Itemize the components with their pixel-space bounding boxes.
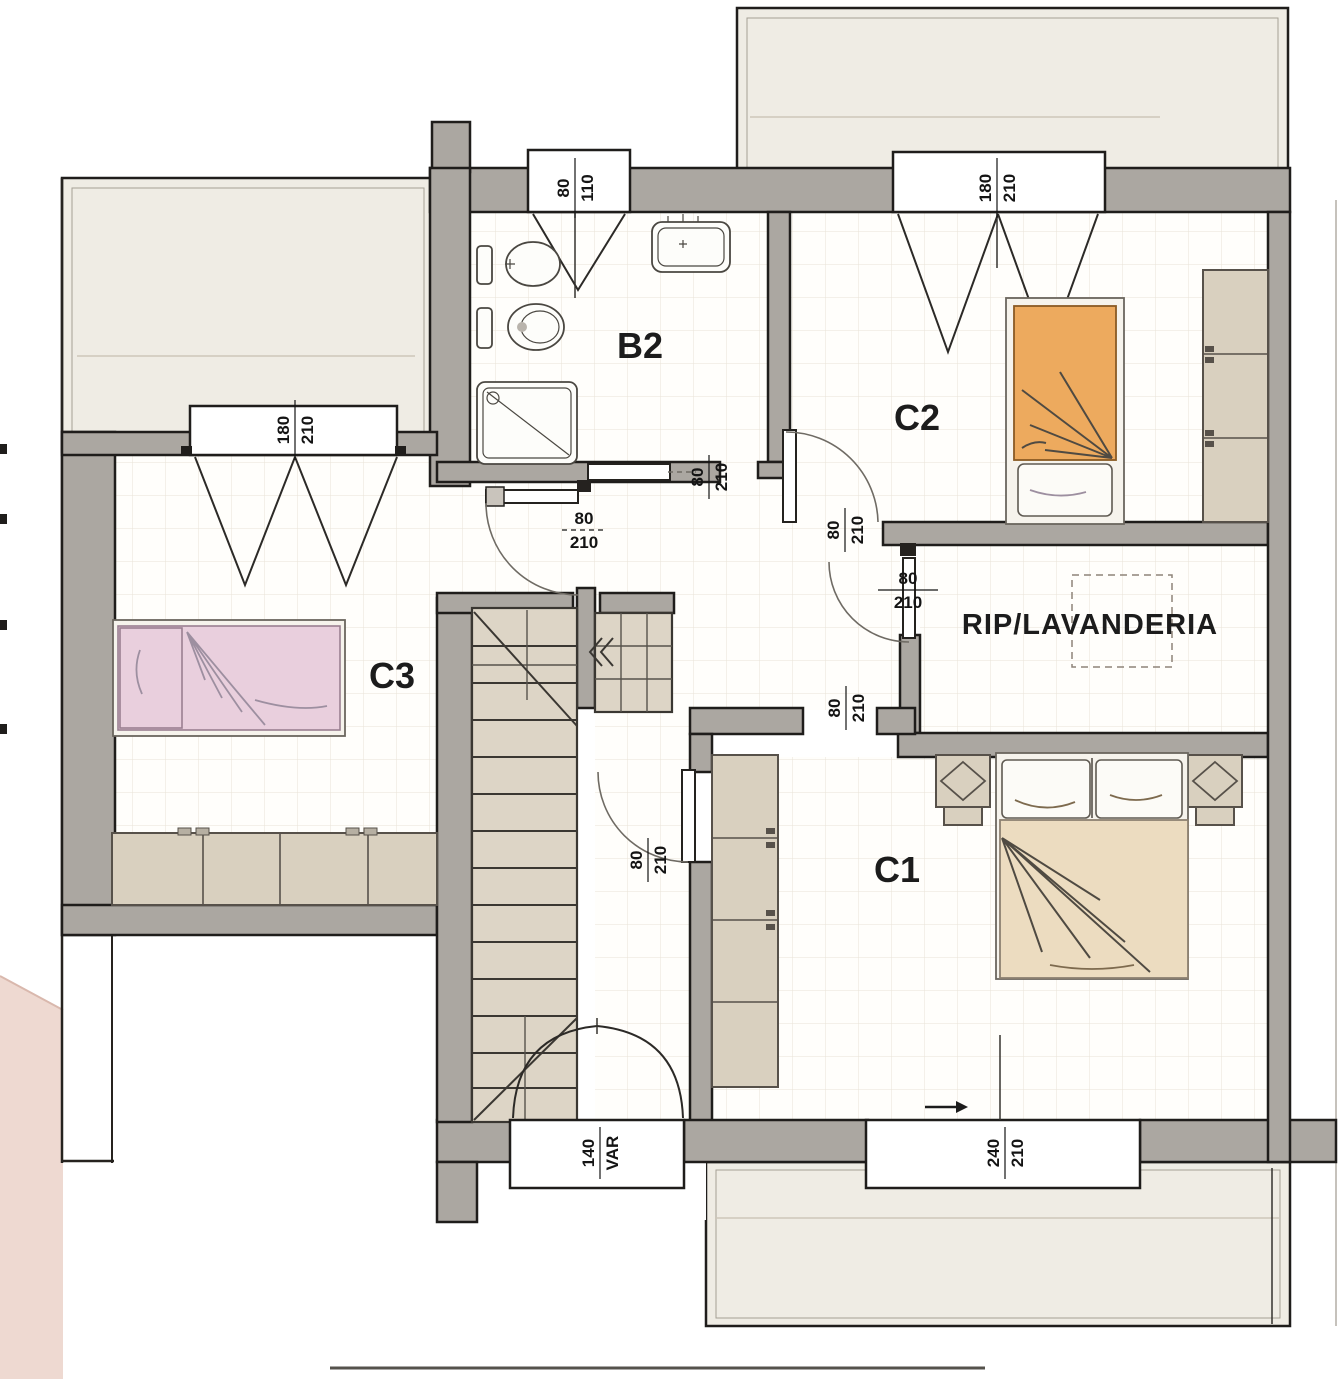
wall-hall-south-b — [877, 708, 915, 734]
double-bed-c1 — [996, 753, 1188, 979]
room-label-c3: C3 — [369, 655, 415, 696]
wall-bottom-left-leg — [437, 1162, 477, 1222]
wall-c3-left — [62, 432, 115, 935]
svg-text:80: 80 — [554, 179, 573, 198]
neighbor-roof-wedge — [0, 976, 63, 1379]
svg-text:210: 210 — [849, 694, 868, 722]
floor-hall-south — [595, 708, 690, 1122]
wardrobe-c1 — [712, 755, 778, 1087]
svg-text:210: 210 — [651, 846, 670, 874]
shower — [477, 382, 577, 464]
wall-c1-left — [690, 862, 712, 1124]
sink — [652, 214, 730, 272]
wall-stairs-left — [437, 598, 472, 1122]
svg-text:80: 80 — [627, 851, 646, 870]
wall-bottom-c — [1140, 1120, 1336, 1162]
svg-text:110: 110 — [578, 174, 597, 201]
wall-stub-top — [432, 122, 470, 172]
nightstand-left — [936, 755, 990, 825]
svg-text:VAR: VAR — [603, 1136, 622, 1171]
room-label-c2: C2 — [894, 397, 940, 438]
wall-right — [1268, 212, 1290, 1162]
svg-text:80: 80 — [825, 699, 844, 718]
svg-text:80: 80 — [688, 468, 707, 487]
svg-text:180: 180 — [274, 416, 293, 444]
svg-text:210: 210 — [298, 416, 317, 444]
bidet — [477, 304, 564, 350]
svg-text:210: 210 — [570, 533, 598, 552]
floor-plan-page: B2 C2 C3 C1 RIP/LAVANDERIA 80 110 180 21… — [0, 0, 1339, 1379]
floor-plan-drawing: B2 C2 C3 C1 RIP/LAVANDERIA 80 110 180 21… — [0, 0, 1339, 1379]
svg-text:210: 210 — [1008, 1139, 1027, 1167]
wall-stairs-top-b — [600, 593, 674, 613]
wall-c2-bottom — [883, 522, 1268, 545]
wardrobe-c3 — [112, 828, 437, 905]
toilet — [477, 242, 560, 286]
svg-text:210: 210 — [1000, 174, 1019, 202]
wall-c2-left — [768, 212, 790, 462]
room-label-b2: B2 — [617, 325, 663, 366]
wall-c3-bottom — [62, 905, 437, 935]
wardrobe-c2 — [1203, 270, 1268, 522]
single-bed-c2 — [1006, 298, 1124, 524]
single-bed-c3 — [113, 620, 345, 736]
svg-text:80: 80 — [575, 509, 594, 528]
svg-text:80: 80 — [899, 569, 918, 588]
room-label-rip: RIP/LAVANDERIA — [962, 609, 1218, 641]
wall-bottom-a — [437, 1120, 512, 1162]
wall-bottom-b — [684, 1120, 868, 1162]
svg-text:80: 80 — [824, 521, 843, 540]
wall-c1-left-stub — [690, 734, 712, 772]
svg-text:140: 140 — [579, 1139, 598, 1167]
nightstand-right — [1188, 755, 1242, 825]
svg-text:210: 210 — [848, 516, 867, 544]
room-label-c1: C1 — [874, 849, 920, 890]
svg-text:210: 210 — [894, 593, 922, 612]
svg-text:180: 180 — [976, 174, 995, 202]
svg-text:240: 240 — [984, 1139, 1003, 1167]
svg-text:210: 210 — [712, 463, 731, 491]
stair-landing — [590, 613, 672, 712]
wall-hall-south-a — [690, 708, 803, 734]
